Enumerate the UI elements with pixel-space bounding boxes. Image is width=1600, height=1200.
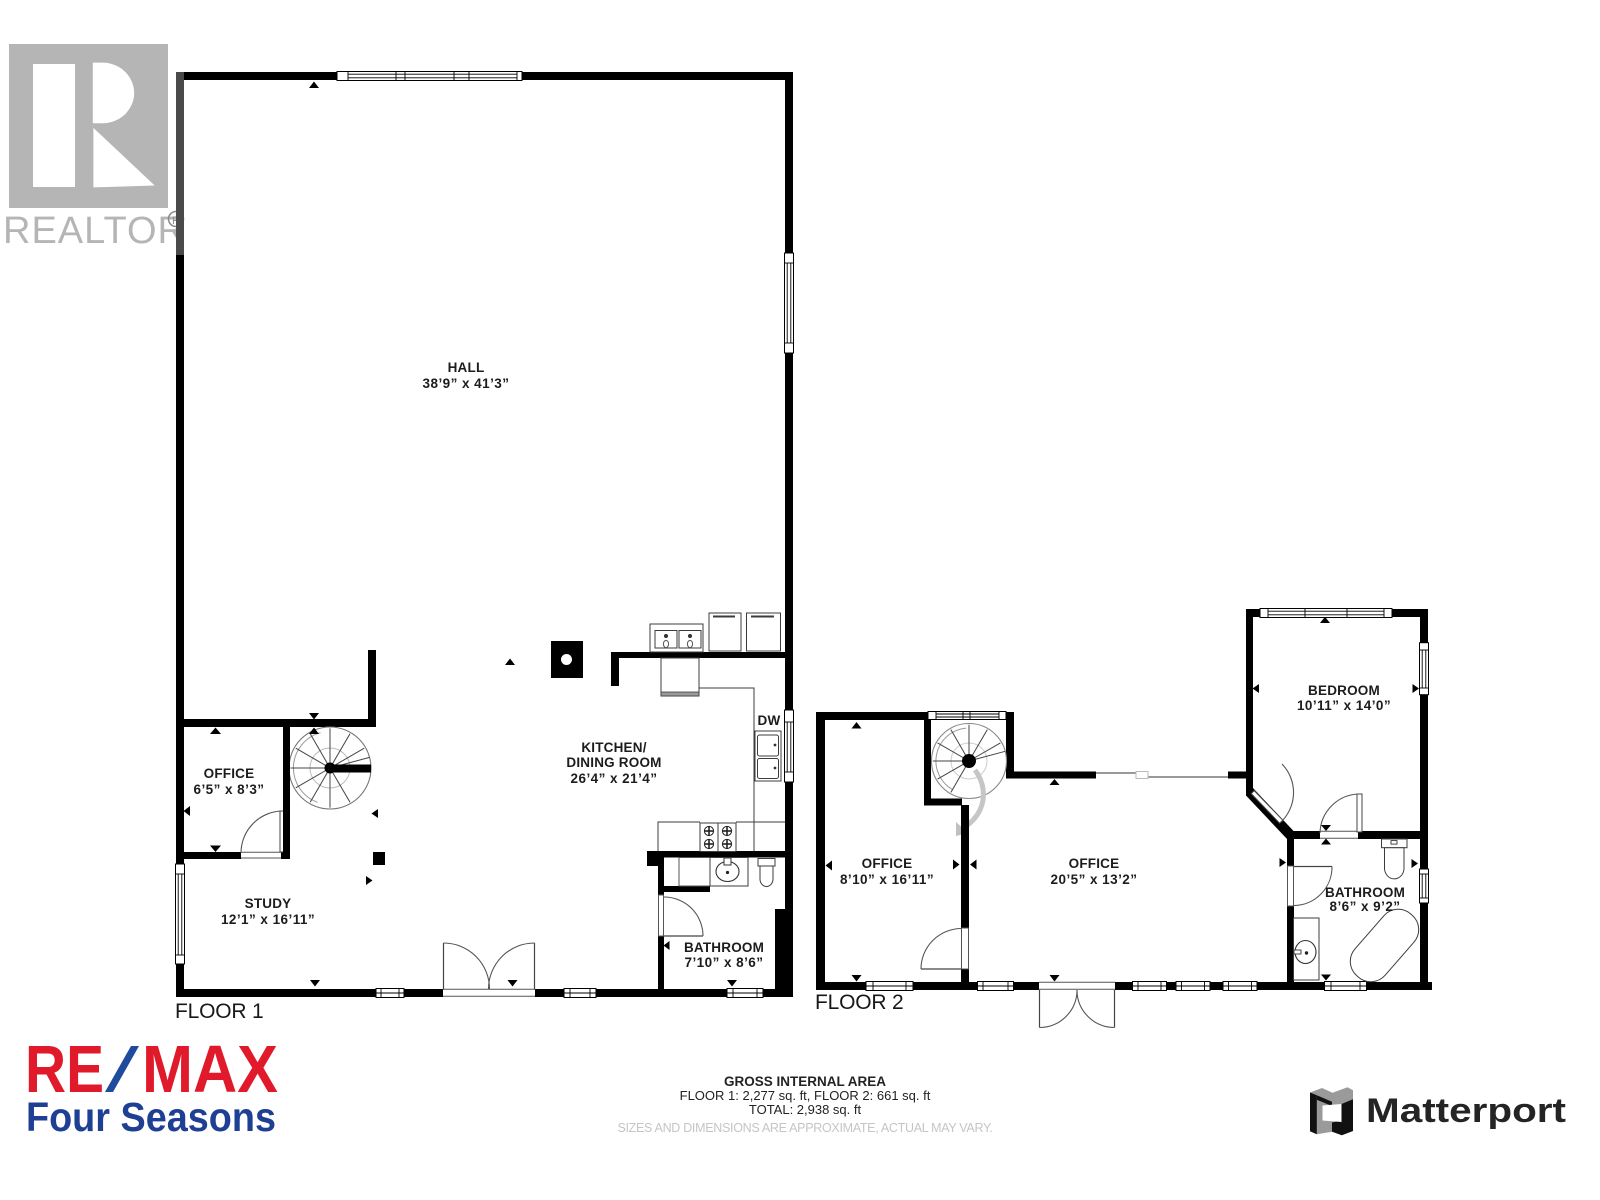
svg-text:STUDY: STUDY xyxy=(245,896,292,911)
svg-text:TOTAL: 2,938 sq. ft: TOTAL: 2,938 sq. ft xyxy=(749,1102,862,1117)
svg-text:HALL: HALL xyxy=(448,360,485,375)
svg-text:FLOOR 1: FLOOR 1 xyxy=(175,1000,263,1023)
svg-text:6’5” x 8’3”: 6’5” x 8’3” xyxy=(194,782,265,797)
svg-text:SIZES AND DIMENSIONS ARE APPRO: SIZES AND DIMENSIONS ARE APPROXIMATE, AC… xyxy=(617,1121,992,1135)
svg-text:OFFICE: OFFICE xyxy=(1069,856,1120,871)
svg-text:8’6” x 9’2”: 8’6” x 9’2” xyxy=(1330,899,1401,914)
svg-text:OFFICE: OFFICE xyxy=(862,856,913,871)
svg-text:20’5” x 13’2”: 20’5” x 13’2” xyxy=(1051,872,1138,887)
svg-text:Four Seasons: Four Seasons xyxy=(26,1094,276,1140)
svg-text:DINING ROOM: DINING ROOM xyxy=(566,755,661,770)
svg-text:DW: DW xyxy=(758,713,781,728)
svg-text:Matterport: Matterport xyxy=(1366,1092,1566,1130)
svg-text:12’1” x 16’11”: 12’1” x 16’11” xyxy=(221,912,315,927)
svg-text:26’4” x 21’4”: 26’4” x 21’4” xyxy=(571,771,658,786)
svg-text:BATHROOM: BATHROOM xyxy=(1325,885,1405,900)
svg-text:7’10” x 8’6”: 7’10” x 8’6” xyxy=(685,955,764,970)
svg-text:8’10” x 16’11”: 8’10” x 16’11” xyxy=(840,872,934,887)
svg-text:KITCHEN/: KITCHEN/ xyxy=(581,740,646,755)
svg-text:FLOOR 2: FLOOR 2 xyxy=(815,991,903,1014)
svg-text:GROSS INTERNAL AREA: GROSS INTERNAL AREA xyxy=(724,1074,886,1089)
svg-text:BEDROOM: BEDROOM xyxy=(1308,683,1380,698)
svg-text:10’11” x 14’0”: 10’11” x 14’0” xyxy=(1297,698,1391,713)
svg-text:OFFICE: OFFICE xyxy=(204,766,255,781)
svg-text:BATHROOM: BATHROOM xyxy=(684,940,764,955)
svg-text:REALTOR: REALTOR xyxy=(3,210,186,252)
svg-text:FLOOR 1: 2,277 sq. ft, FLOOR 2: FLOOR 1: 2,277 sq. ft, FLOOR 2: 661 sq. … xyxy=(680,1088,931,1103)
svg-text:38’9” x 41’3”: 38’9” x 41’3” xyxy=(423,376,510,391)
